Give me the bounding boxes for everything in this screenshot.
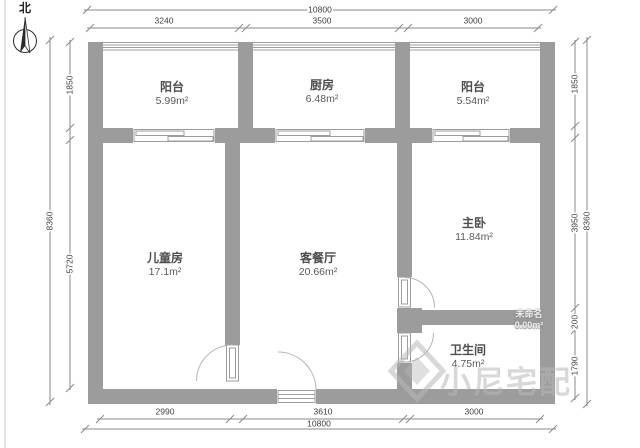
- north-label: 北: [8, 2, 42, 15]
- dim-left-seg2: 5720: [66, 254, 75, 275]
- wall-bottom-left: [88, 389, 277, 404]
- north-arrow-icon: [8, 15, 42, 63]
- unnamed-area-value: 0.00m²: [497, 320, 561, 331]
- room-balcony-left: 阳台 5.99m²: [156, 80, 189, 108]
- room-kitchen: 厨房 6.48m²: [306, 78, 339, 106]
- dim-top-total: 10800: [307, 6, 333, 15]
- room-kitchen-name: 厨房: [306, 78, 339, 93]
- wall-mid-seg2: [215, 128, 275, 143]
- floor-plan-canvas: 10800 3240 3500 3000 2990 3610 3000 1080…: [0, 0, 640, 448]
- wall-outer-left: [88, 42, 103, 404]
- room-kids-area: 17.1m²: [147, 266, 183, 279]
- room-balcony-right-name: 阳台: [457, 80, 490, 95]
- unnamed-area-label: 未命名 0.00m²: [497, 309, 561, 331]
- north-indicator: 北: [8, 2, 42, 64]
- dim-bottom-total: 10800: [306, 420, 332, 429]
- sliding-door-balconyR: [432, 129, 510, 143]
- dim-bottom-seg2: 3610: [313, 408, 334, 417]
- dim-top-seg3: 3000: [463, 17, 484, 26]
- dim-right-seg3: 200: [571, 314, 580, 330]
- room-balcony-right: 阳台 5.54m²: [457, 80, 490, 108]
- unnamed-area-name: 未命名: [497, 309, 561, 320]
- room-master-bedroom-name: 主卧: [455, 216, 493, 231]
- wall-kids-living: [225, 143, 240, 345]
- wall-mid-seg1: [88, 128, 133, 143]
- room-kitchen-area: 6.48m²: [306, 93, 339, 106]
- room-kids: 儿童房 17.1m²: [147, 251, 183, 279]
- dim-right-seg2: 3950: [571, 213, 580, 234]
- wall-mid-seg3: [365, 128, 432, 143]
- room-balcony-right-area: 5.54m²: [457, 95, 490, 108]
- room-kids-name: 儿童房: [147, 251, 183, 266]
- page-edge-line: [4, 0, 6, 448]
- room-living-dining-area: 20.66m²: [299, 266, 338, 279]
- dim-bottom-seg3: 3000: [464, 408, 485, 417]
- entry-door: [277, 352, 316, 404]
- room-living-dining: 客餐厅 20.66m²: [299, 251, 338, 279]
- dim-right-total: 8360: [583, 211, 592, 232]
- window-band-top: [103, 43, 540, 51]
- sliding-door-balconyL: [133, 129, 215, 143]
- room-balcony-left-name: 阳台: [156, 80, 189, 95]
- dim-left-total: 8360: [46, 211, 55, 232]
- kids-room-door: [197, 345, 239, 381]
- room-living-dining-name: 客餐厅: [299, 251, 338, 266]
- room-master-bedroom-area: 11.84m²: [455, 231, 493, 244]
- master-bedroom-door: [399, 277, 435, 308]
- room-bathroom-name: 卫生间: [450, 343, 486, 358]
- wall-living-master: [397, 143, 412, 277]
- sliding-door-kitchen: [275, 129, 365, 143]
- room-balcony-left-area: 5.99m²: [156, 95, 189, 108]
- dim-bottom-seg1: 2990: [155, 408, 176, 417]
- brand-watermark: 小尼宅配: [440, 357, 572, 402]
- bathroom-door: [399, 333, 434, 362]
- dim-left-seg1: 1850: [66, 75, 75, 96]
- wall-living-bath: [397, 363, 412, 389]
- room-master-bedroom: 主卧 11.84m²: [455, 216, 493, 244]
- dim-top-seg2: 3500: [312, 17, 333, 26]
- wall-outer-right: [540, 42, 555, 404]
- dim-right-seg1: 1850: [571, 74, 580, 95]
- wall-mid-seg4: [510, 128, 555, 143]
- dim-top-seg1: 3240: [154, 17, 175, 26]
